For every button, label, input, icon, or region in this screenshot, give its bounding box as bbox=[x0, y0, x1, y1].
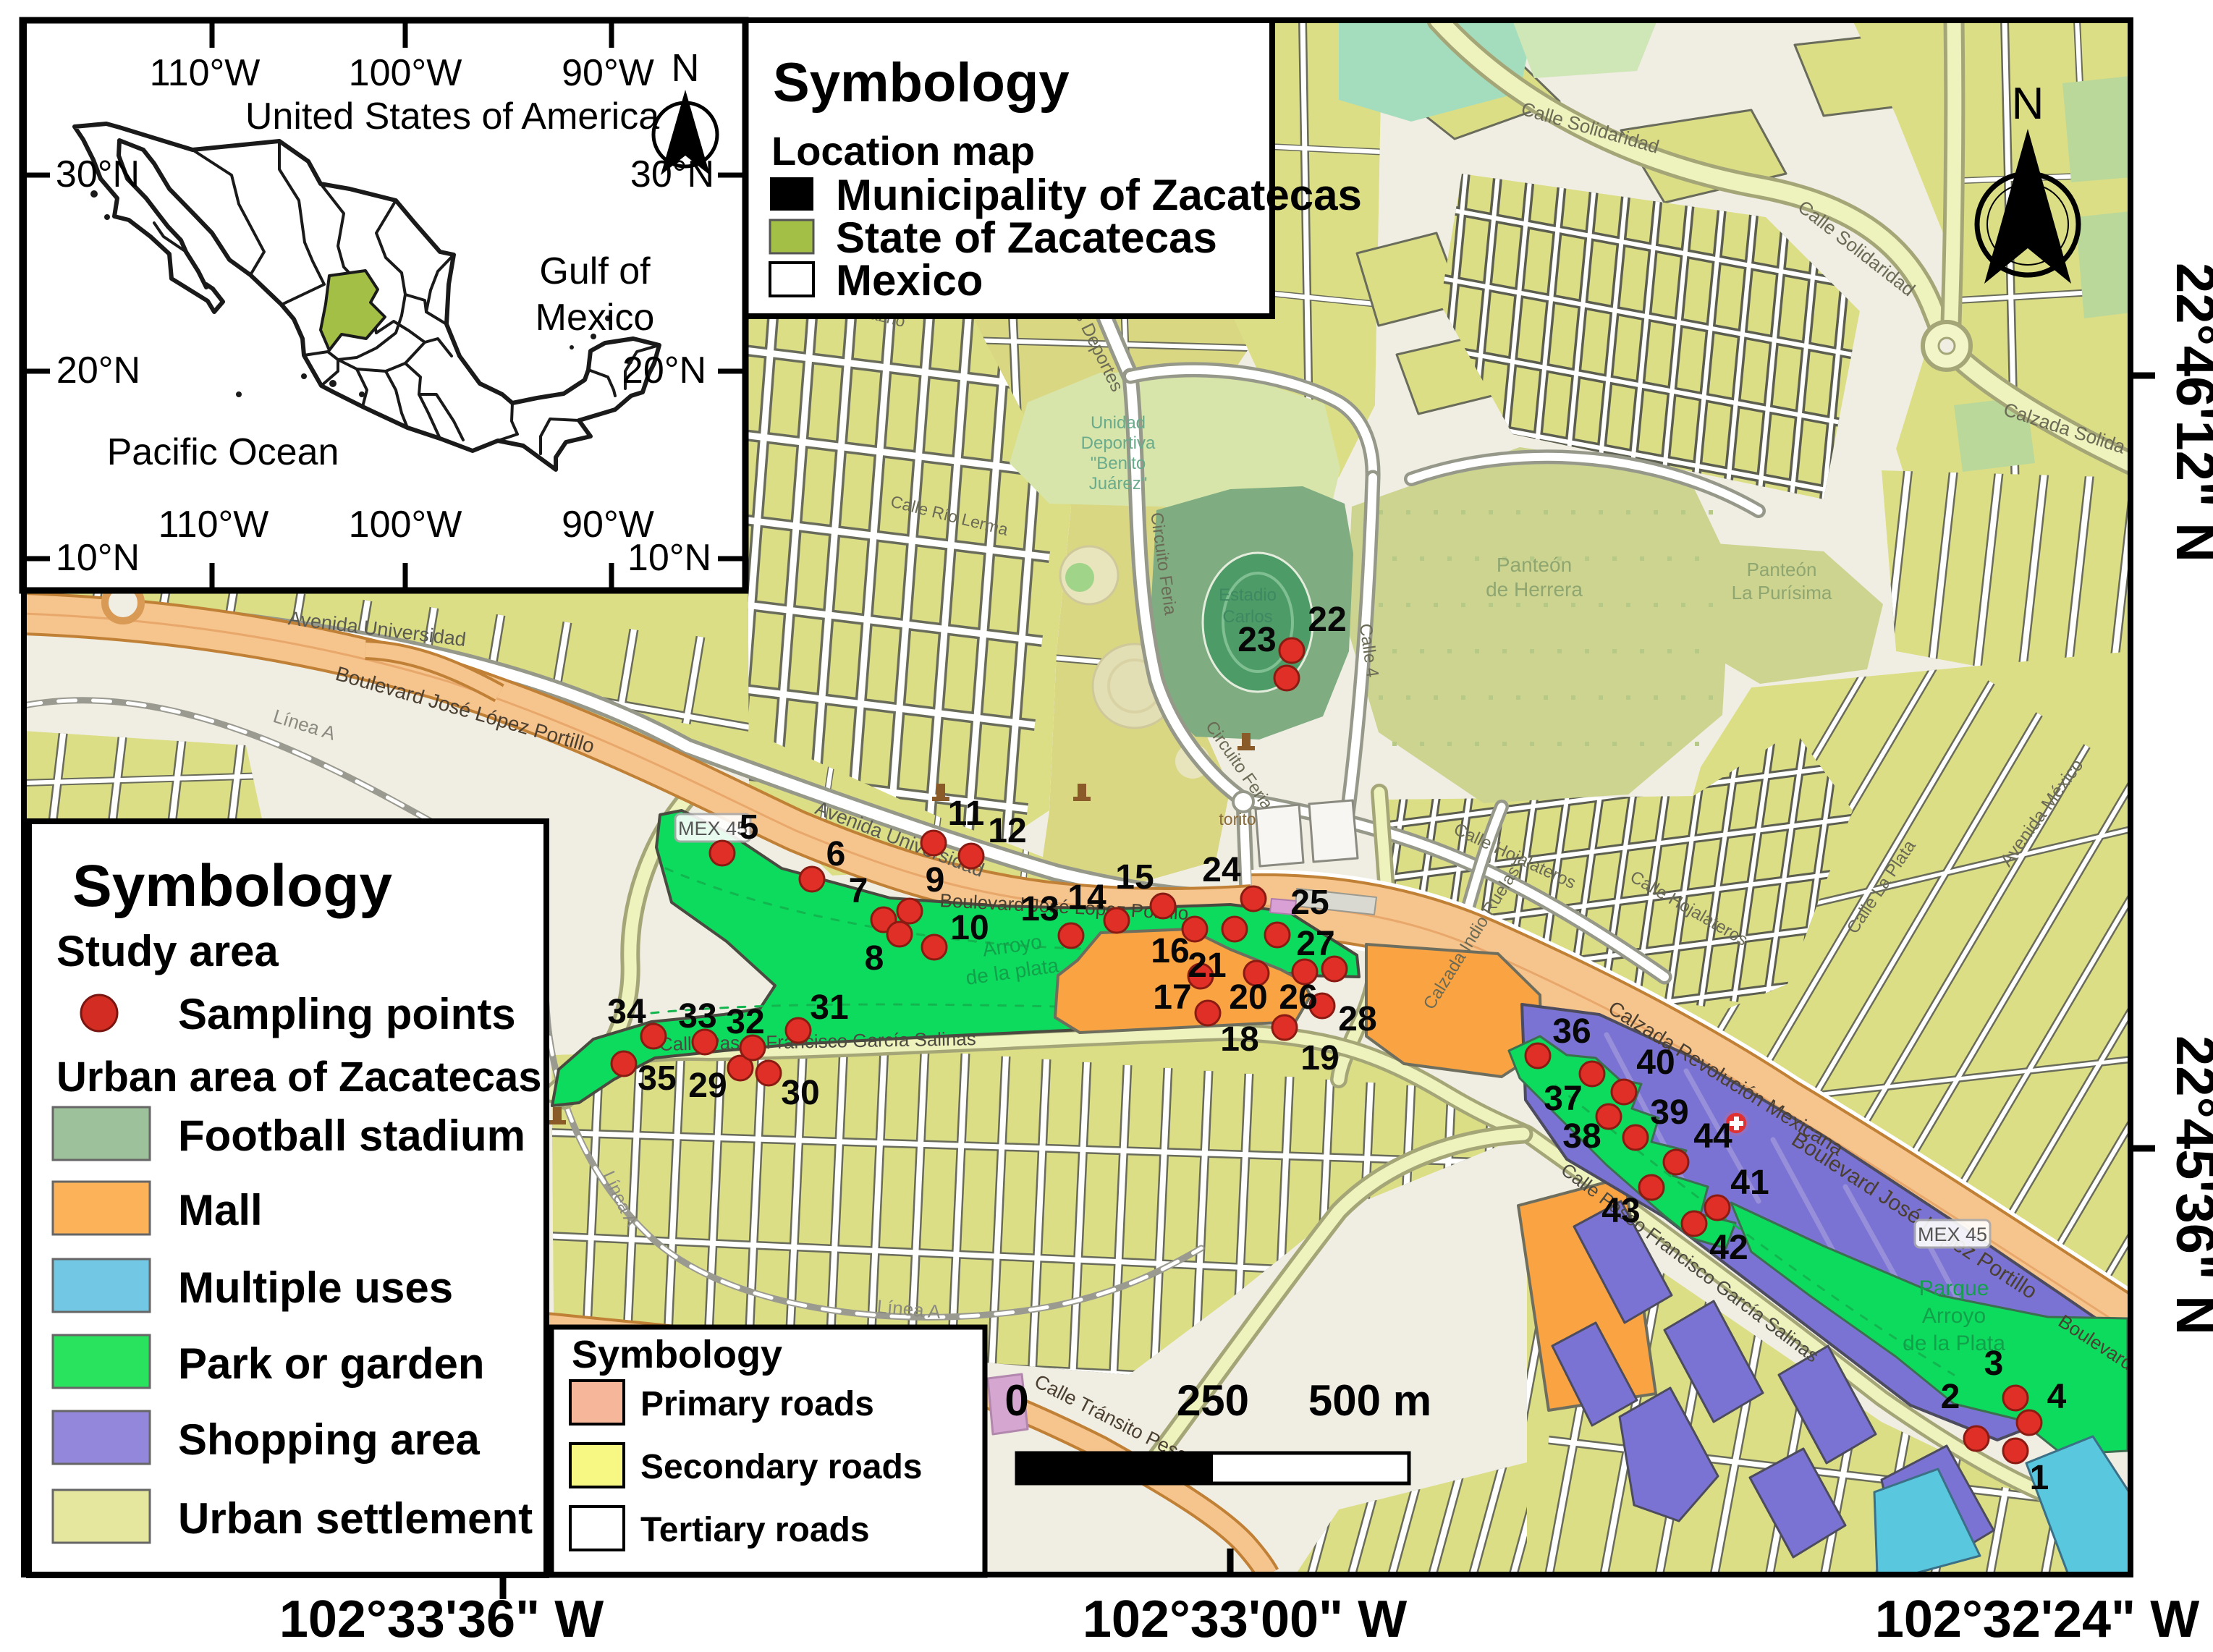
svg-text:11: 11 bbox=[948, 795, 985, 833]
svg-text:36: 36 bbox=[1552, 1012, 1591, 1051]
svg-text:43: 43 bbox=[1601, 1192, 1640, 1230]
svg-text:12: 12 bbox=[988, 812, 1026, 850]
svg-text:26: 26 bbox=[1279, 978, 1317, 1017]
svg-text:Mexico: Mexico bbox=[836, 256, 983, 305]
svg-text:40: 40 bbox=[1636, 1043, 1675, 1082]
svg-text:24: 24 bbox=[1202, 851, 1241, 889]
svg-text:Multiple uses: Multiple uses bbox=[178, 1263, 453, 1312]
svg-text:Gulf of: Gulf of bbox=[539, 250, 651, 292]
svg-text:Parque: Parque bbox=[1919, 1276, 1989, 1300]
svg-text:8: 8 bbox=[865, 939, 884, 978]
svg-text:20°N: 20°N bbox=[622, 350, 706, 391]
svg-text:Panteón: Panteón bbox=[1747, 559, 1817, 580]
svg-text:N: N bbox=[2012, 79, 2044, 129]
svg-text:27: 27 bbox=[1296, 925, 1334, 963]
svg-text:19: 19 bbox=[1300, 1039, 1339, 1077]
svg-text:44: 44 bbox=[1693, 1117, 1732, 1156]
svg-text:38: 38 bbox=[1562, 1117, 1601, 1156]
svg-text:32: 32 bbox=[726, 1003, 764, 1041]
svg-text:110°W: 110°W bbox=[158, 504, 269, 546]
svg-text:7: 7 bbox=[849, 872, 868, 910]
svg-text:Symbology: Symbology bbox=[773, 52, 1070, 114]
svg-text:3: 3 bbox=[1984, 1344, 2004, 1383]
svg-text:Mexico: Mexico bbox=[536, 297, 655, 339]
svg-text:10°N: 10°N bbox=[56, 537, 140, 579]
svg-text:25: 25 bbox=[1290, 884, 1329, 922]
svg-text:14: 14 bbox=[1067, 878, 1106, 917]
svg-text:Urban settlement: Urban settlement bbox=[178, 1494, 533, 1543]
svg-text:MEX 45: MEX 45 bbox=[678, 818, 748, 839]
svg-text:Study area: Study area bbox=[56, 927, 279, 975]
svg-text:102°33'36" W: 102°33'36" W bbox=[279, 1590, 604, 1648]
svg-text:Primary roads: Primary roads bbox=[640, 1385, 874, 1423]
svg-text:10: 10 bbox=[950, 909, 989, 947]
svg-text:18: 18 bbox=[1220, 1020, 1258, 1059]
svg-text:110°W: 110°W bbox=[150, 52, 261, 94]
svg-text:Symbology: Symbology bbox=[572, 1333, 782, 1376]
svg-text:20°N: 20°N bbox=[56, 350, 140, 391]
svg-text:de Herrera: de Herrera bbox=[1486, 578, 1583, 601]
svg-text:22°45'36" N: 22°45'36" N bbox=[2165, 1035, 2213, 1335]
svg-text:MEX 45: MEX 45 bbox=[1918, 1224, 1987, 1245]
svg-text:2: 2 bbox=[1941, 1378, 1960, 1416]
svg-text:Secondary roads: Secondary roads bbox=[640, 1448, 922, 1486]
svg-text:Deportiva: Deportiva bbox=[1081, 433, 1156, 453]
svg-text:Park or garden: Park or garden bbox=[178, 1339, 485, 1388]
svg-text:Juárez": Juárez" bbox=[1089, 474, 1148, 494]
svg-text:21: 21 bbox=[1188, 946, 1226, 985]
svg-text:30°N: 30°N bbox=[56, 153, 140, 195]
svg-text:34: 34 bbox=[607, 993, 646, 1031]
svg-text:Location map: Location map bbox=[771, 128, 1035, 174]
svg-text:20: 20 bbox=[1229, 978, 1267, 1017]
svg-text:4: 4 bbox=[2047, 1378, 2067, 1416]
svg-text:100°W: 100°W bbox=[349, 504, 462, 546]
svg-text:41: 41 bbox=[1730, 1164, 1769, 1202]
svg-text:10°N: 10°N bbox=[627, 537, 711, 579]
svg-text:Pacific Ocean: Pacific Ocean bbox=[107, 431, 339, 473]
svg-text:13: 13 bbox=[1020, 890, 1059, 928]
svg-text:0: 0 bbox=[1004, 1376, 1028, 1425]
svg-text:Estadio: Estadio bbox=[1219, 585, 1277, 605]
svg-text:102°32'24" W: 102°32'24" W bbox=[1875, 1590, 2199, 1648]
svg-text:16: 16 bbox=[1151, 932, 1189, 970]
svg-text:N: N bbox=[672, 46, 700, 90]
svg-text:United States of America: United States of America bbox=[245, 96, 659, 137]
svg-text:22°46'12" N: 22°46'12" N bbox=[2165, 263, 2213, 562]
svg-text:100°W: 100°W bbox=[349, 52, 462, 94]
svg-text:17: 17 bbox=[1153, 978, 1191, 1017]
svg-text:9: 9 bbox=[926, 861, 945, 899]
svg-text:Unidad: Unidad bbox=[1091, 413, 1146, 433]
svg-text:30: 30 bbox=[781, 1074, 819, 1112]
svg-text:Mall: Mall bbox=[178, 1186, 263, 1234]
svg-text:Municipality of Zacatecas: Municipality of Zacatecas bbox=[836, 171, 1362, 219]
svg-text:"Benito: "Benito bbox=[1091, 454, 1146, 473]
svg-text:102°33'00" W: 102°33'00" W bbox=[1083, 1590, 1407, 1648]
svg-text:Tertiary roads: Tertiary roads bbox=[640, 1511, 870, 1549]
svg-text:90°W: 90°W bbox=[562, 52, 654, 94]
svg-text:42: 42 bbox=[1709, 1229, 1748, 1267]
svg-text:Arroyo: Arroyo bbox=[1922, 1304, 1986, 1328]
svg-text:1: 1 bbox=[2030, 1459, 2049, 1497]
svg-text:500 m: 500 m bbox=[1308, 1376, 1431, 1425]
svg-text:6: 6 bbox=[826, 835, 846, 873]
svg-text:39: 39 bbox=[1650, 1093, 1688, 1132]
svg-text:Sampling points: Sampling points bbox=[178, 990, 516, 1038]
svg-text:22: 22 bbox=[1308, 601, 1346, 639]
svg-text:29: 29 bbox=[688, 1067, 727, 1105]
svg-text:5: 5 bbox=[740, 808, 759, 847]
svg-text:La Purísima: La Purísima bbox=[1732, 582, 1832, 603]
svg-text:Football stadium: Football stadium bbox=[178, 1111, 525, 1160]
svg-text:Panteón: Panteón bbox=[1497, 554, 1572, 576]
svg-text:33: 33 bbox=[678, 997, 716, 1035]
svg-text:31: 31 bbox=[810, 988, 848, 1027]
svg-text:35: 35 bbox=[638, 1059, 676, 1098]
svg-text:250: 250 bbox=[1177, 1376, 1249, 1425]
svg-text:State of Zacatecas: State of Zacatecas bbox=[836, 213, 1217, 262]
svg-text:15: 15 bbox=[1115, 858, 1154, 897]
svg-text:28: 28 bbox=[1338, 1000, 1376, 1038]
svg-text:37: 37 bbox=[1544, 1080, 1582, 1118]
svg-text:torito: torito bbox=[1219, 810, 1256, 829]
svg-text:Urban area of Zacatecas: Urban area of Zacatecas bbox=[56, 1054, 542, 1101]
svg-text:23: 23 bbox=[1237, 621, 1276, 659]
svg-text:Shopping area: Shopping area bbox=[178, 1415, 480, 1464]
svg-text:Symbology: Symbology bbox=[72, 853, 392, 919]
